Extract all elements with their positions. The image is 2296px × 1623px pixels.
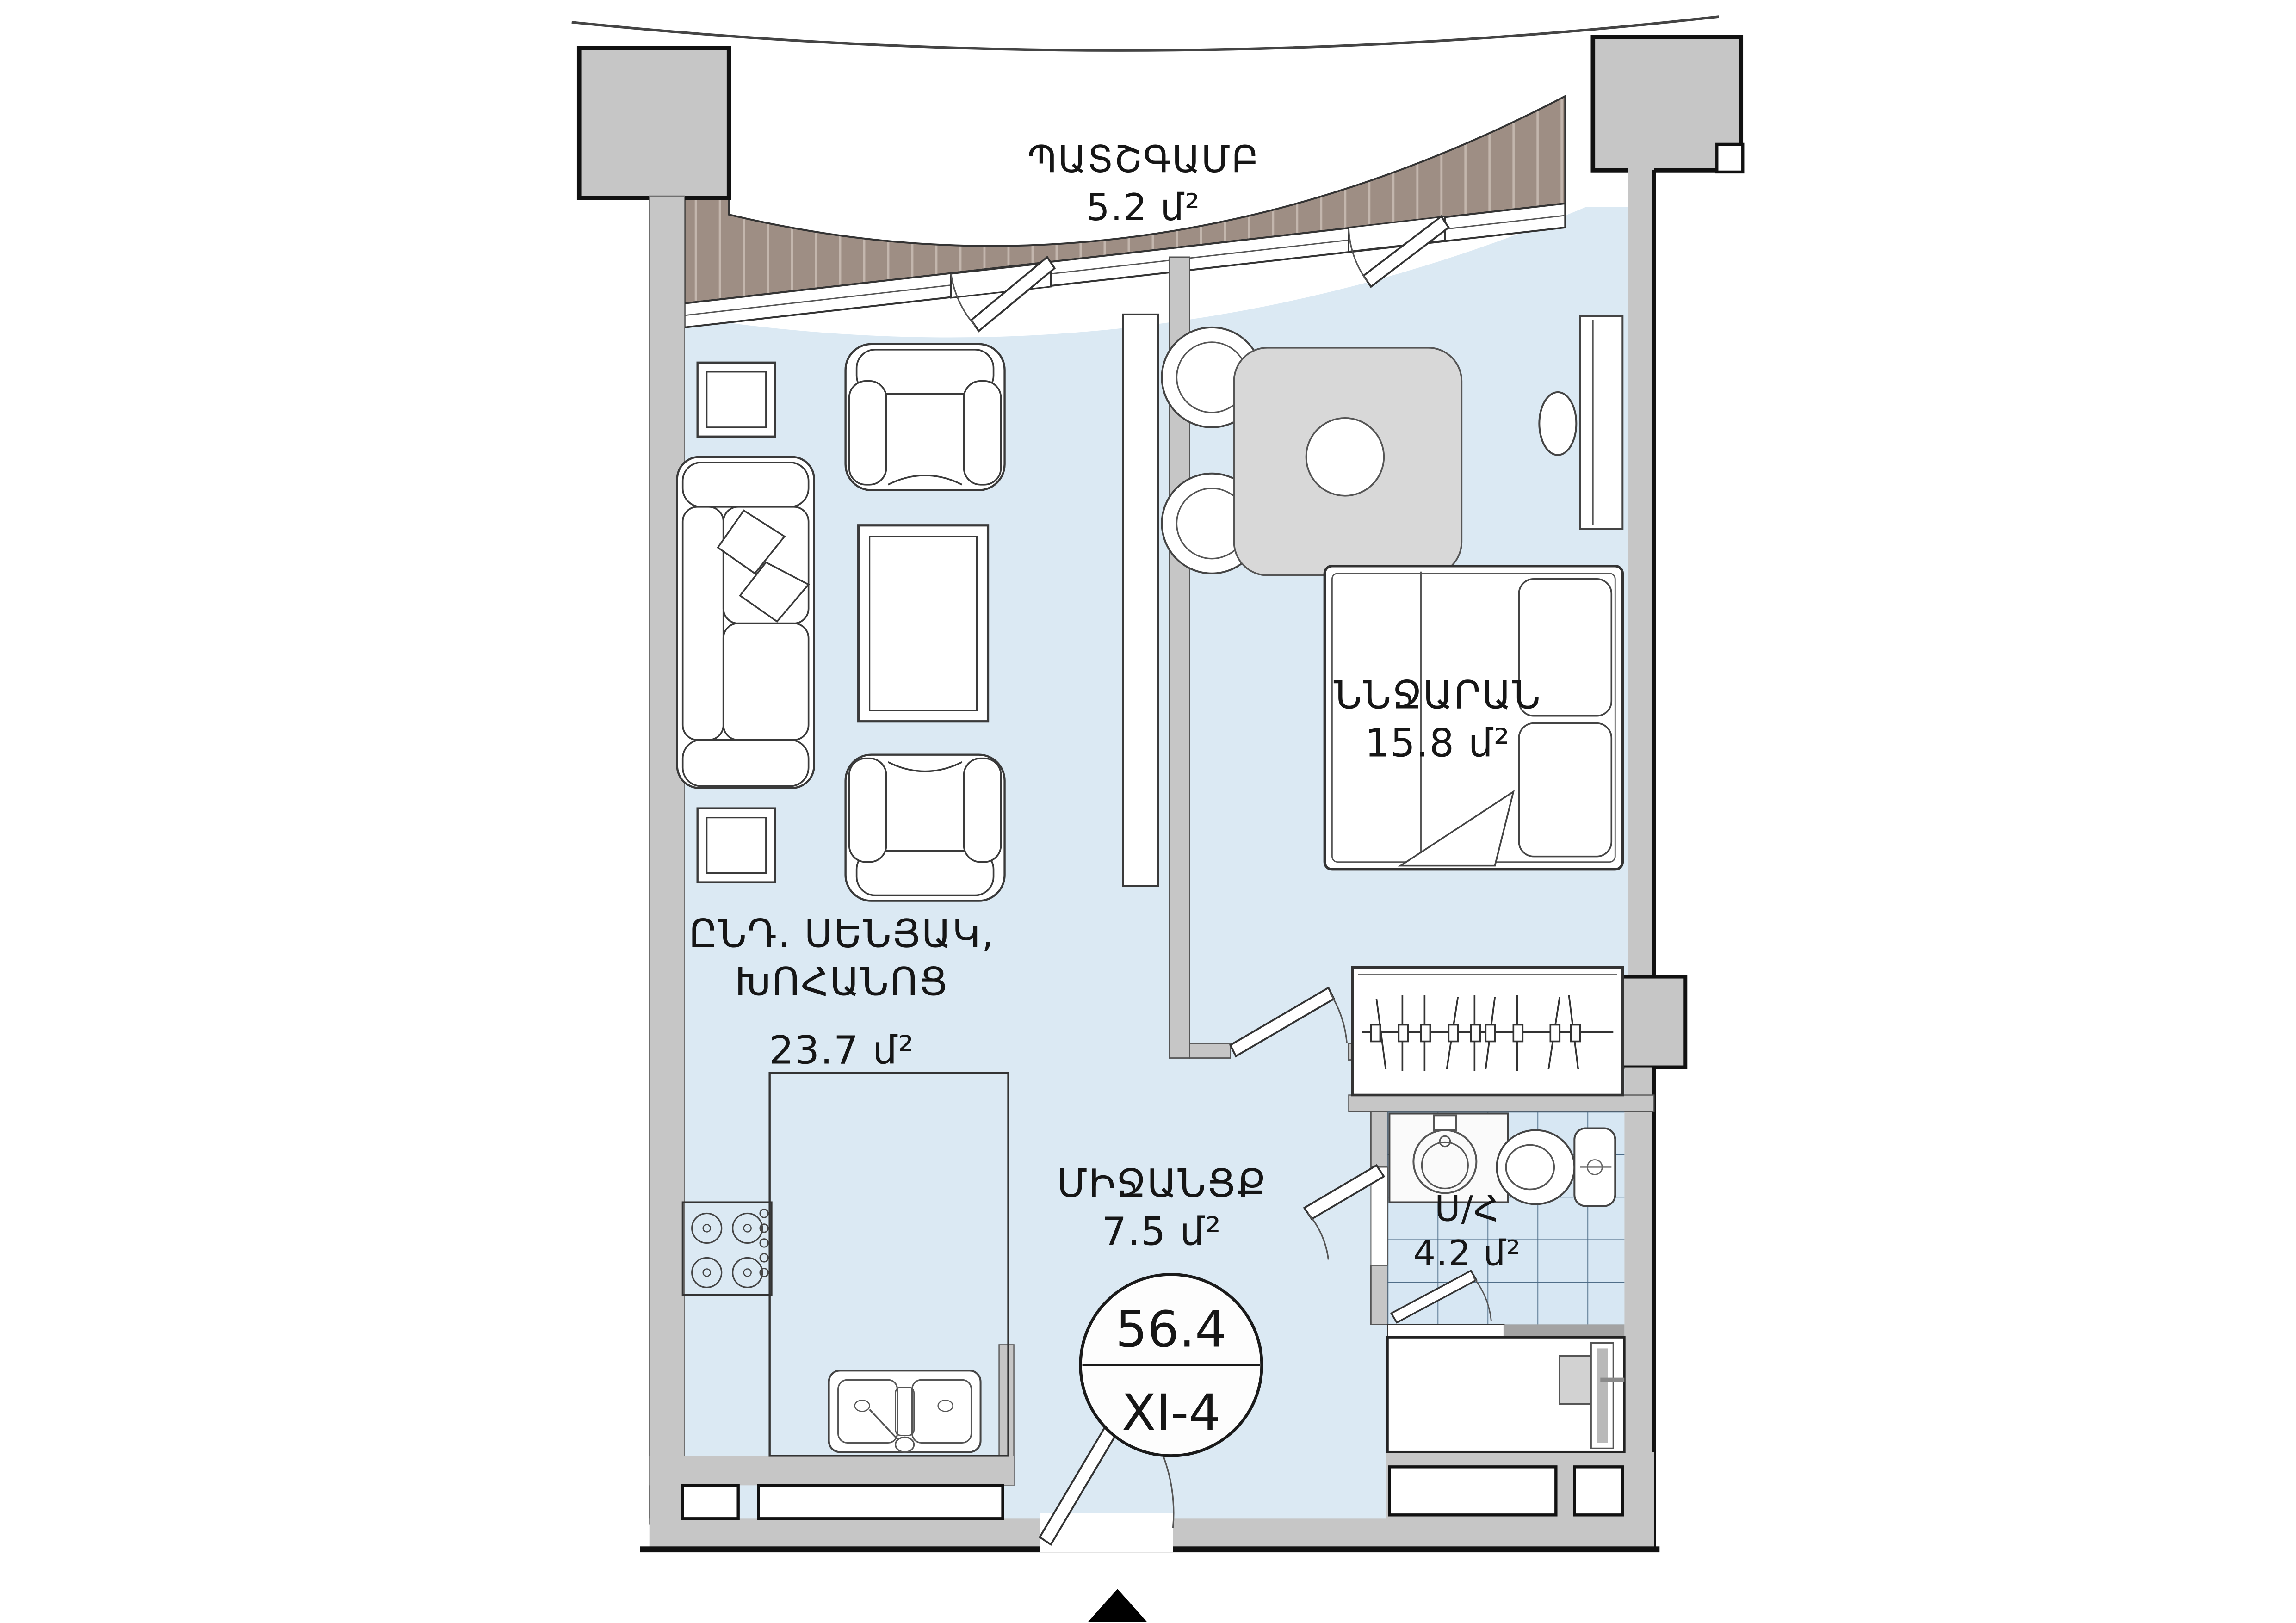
bed-pillow-2 — [1519, 723, 1611, 857]
wardrobe — [1352, 968, 1622, 1095]
coffee-table — [859, 525, 988, 722]
hallway-area: 7.5 մ² — [1102, 1209, 1222, 1254]
window-kitchen-large — [759, 1485, 1003, 1518]
living-name-line1: ԸՆԴ. ՍԵՆՅԱԿ, — [689, 911, 995, 957]
bedroom-name: ՆՆՋԱՐԱՆ — [1334, 673, 1541, 718]
balcony-name: ՊԱՏՇԳԱՄԲ — [1027, 138, 1260, 181]
bathroom-partition-strip — [1504, 1324, 1624, 1337]
floor-plan-page: ՊԱՏՇԳԱՄԲ 5.2 մ² ՆՆՋԱՐԱՆ 15.8 մ² ԸՆԴ. ՍԵՆ… — [0, 0, 2296, 1622]
balcony-area: 5.2 մ² — [1086, 186, 1201, 229]
living-area: 23.7 մ² — [769, 1028, 915, 1073]
unit-total-area: 56.4 — [1115, 1301, 1226, 1358]
column-top-right-notch — [1717, 144, 1743, 172]
floor-plan-svg: ՊԱՏՇԳԱՄԲ 5.2 մ² ՆՆՋԱՐԱՆ 15.8 մ² ԸՆԴ. ՍԵՆ… — [0, 0, 2296, 1622]
armchair-top — [846, 344, 1005, 490]
toilet-bowl — [1497, 1130, 1574, 1204]
bedroom-area: 15.8 մ² — [1365, 721, 1510, 766]
wall-left — [650, 196, 685, 1524]
window-bathroom-left — [1389, 1467, 1556, 1515]
window-kitchen-small — [683, 1485, 738, 1518]
kitchen-sink — [829, 1370, 981, 1452]
hallway-name: ՄԻՋԱՆՑՔ — [1057, 1160, 1267, 1206]
bathroom-area: 4.2 մ² — [1413, 1232, 1521, 1273]
wall-kitchen-window-band — [650, 1456, 1014, 1485]
unit-id: XI-4 — [1122, 1384, 1220, 1442]
bathroom — [1387, 1112, 1624, 1452]
sofa — [677, 457, 814, 788]
tv-cabinet — [1123, 315, 1158, 886]
wall-bathroom-left-lower — [1371, 1265, 1387, 1324]
stool — [1539, 392, 1576, 455]
living-name-line2: ԽՈՀԱՆՈՑ — [735, 959, 948, 1005]
bathroom-name: Ս/Հ — [1435, 1188, 1499, 1229]
wall-middle-stub — [1189, 1043, 1230, 1058]
bedroom-table-decor — [1306, 418, 1384, 496]
side-table-bottom — [698, 808, 775, 882]
bathroom-sink-tap — [1434, 1116, 1456, 1130]
bathroom-threshold — [1387, 1324, 1504, 1337]
wall-under-wardrobe — [1349, 1095, 1654, 1112]
unit-stamp: 56.4 XI-4 — [1081, 1274, 1262, 1456]
armchair-bottom — [846, 755, 1005, 901]
shower-rail — [1597, 1348, 1608, 1443]
side-table-top — [698, 363, 775, 437]
wall-right-upper — [1628, 167, 1654, 977]
column-top-left — [579, 48, 729, 198]
window-bathroom-right — [1574, 1467, 1622, 1515]
dresser — [1580, 316, 1622, 529]
